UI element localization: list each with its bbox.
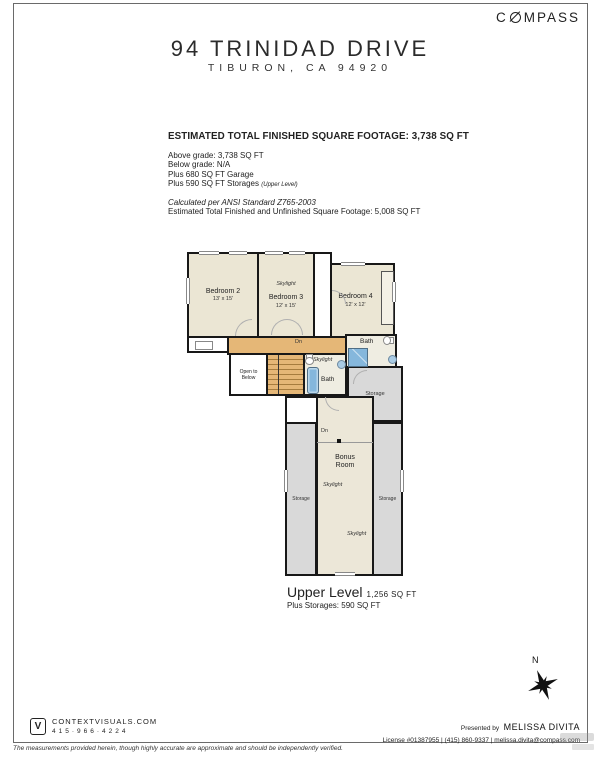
summary-storages-text: Plus 590 SQ FT Storages xyxy=(168,179,259,188)
window xyxy=(284,470,288,492)
closet-fixture xyxy=(195,341,213,350)
storage-label: Storage xyxy=(292,496,310,502)
stair-direction-line xyxy=(278,355,279,394)
window xyxy=(229,251,247,255)
window xyxy=(400,470,404,492)
square-footage-summary: ESTIMATED TOTAL FINISHED SQUARE FOOTAGE:… xyxy=(168,131,469,217)
window xyxy=(289,251,305,255)
page-title: 94 TRINIDAD DRIVE xyxy=(0,36,600,62)
open-to-below-label: Open to Below xyxy=(235,369,263,381)
skylight-label: Skylight xyxy=(276,281,295,287)
agent-name: MELISSA DIVITA xyxy=(504,722,580,732)
room-dimensions: 12' x 15' xyxy=(276,303,296,309)
bonus-room-label: Bonus Room xyxy=(316,454,374,472)
corridor xyxy=(285,396,318,424)
contextvisuals-logo-icon: V xyxy=(30,718,46,735)
level-storages: Plus Storages: 590 SQ FT xyxy=(287,601,417,610)
level-area: 1,256 SQ FT xyxy=(367,590,417,599)
open-to-below: Open to Below xyxy=(229,353,268,396)
window xyxy=(392,282,396,302)
sink xyxy=(388,355,397,364)
summary-garage: Plus 680 SQ FT Garage xyxy=(168,170,469,179)
skylight-label: Skylight xyxy=(313,357,332,363)
floor-plan-page: C MPASS 94 TRINIDAD DRIVE TIBURON, CA 94… xyxy=(0,0,600,764)
presented-by-label: Presented by xyxy=(461,725,499,732)
summary-storages-note: (Upper Level) xyxy=(261,182,297,188)
summary-storages: Plus 590 SQ FT Storages (Upper Level) xyxy=(168,179,469,190)
room-dimensions: 13' x 15' xyxy=(213,296,233,302)
compass-logo-o-icon xyxy=(510,12,521,23)
window xyxy=(265,251,283,255)
compass-rose: N xyxy=(520,655,568,707)
room-label: Bonus Room xyxy=(329,454,361,471)
agent-credit: Presented by MELISSA DIVITA License #013… xyxy=(382,717,580,744)
staircase xyxy=(266,353,305,396)
contextvisuals-site: CONTEXTVISUALS.COM xyxy=(52,717,157,726)
compass-rose-icon xyxy=(520,661,568,707)
window xyxy=(186,278,190,304)
toilet xyxy=(305,354,314,365)
contextvisuals-logo-letter: V xyxy=(35,721,42,732)
measurements-disclaimer: The measurements provided herein, though… xyxy=(13,745,343,752)
down-stairs-label: Dn xyxy=(321,428,328,434)
contextvisuals-phone: 415·966·4224 xyxy=(52,728,157,735)
floor-plan: Bedroom 2 13' x 15' Skylight Bedroom 3 1… xyxy=(185,250,411,580)
window xyxy=(335,572,355,576)
door-marker xyxy=(337,439,341,443)
compass-logo-text-post: MPASS xyxy=(524,10,580,25)
sink xyxy=(337,360,346,369)
watermark xyxy=(556,733,594,755)
summary-above-grade: Above grade: 3,738 SQ FT xyxy=(168,151,469,160)
window xyxy=(199,251,219,255)
bath-label: Bath xyxy=(360,338,373,345)
skylight-label: Skylight xyxy=(323,482,342,488)
summary-below-grade: Below grade: N/A xyxy=(168,160,469,169)
agent-contact: License #01387955 | (415) 860-9337 | mel… xyxy=(382,737,580,744)
down-stairs-label: Dn xyxy=(295,339,302,345)
summary-ansi-note: Calculated per ANSI Standard Z765-2003 xyxy=(168,198,469,207)
bonus-room-divider xyxy=(317,442,373,443)
skylight-label: Skylight xyxy=(347,531,366,537)
window xyxy=(341,262,365,266)
summary-heading: ESTIMATED TOTAL FINISHED SQUARE FOOTAGE:… xyxy=(168,131,469,142)
room-dimensions: 12' x 12' xyxy=(345,302,365,308)
bathtub xyxy=(307,367,319,394)
compass-logo: C MPASS xyxy=(496,10,580,25)
toilet xyxy=(383,336,394,345)
room-storage-right: Storage xyxy=(372,422,403,576)
room-label: Bedroom 2 xyxy=(206,288,240,296)
shower xyxy=(348,348,368,367)
summary-total: Estimated Total Finished and Unfinished … xyxy=(168,207,469,216)
storage-label: Storage xyxy=(379,496,397,502)
level-caption: Upper Level 1,256 SQ FT Plus Storages: 5… xyxy=(287,584,417,610)
contextvisuals-credit: V CONTEXTVISUALS.COM 415·966·4224 xyxy=(30,717,157,735)
compass-logo-text-pre: C xyxy=(496,10,508,25)
bath-label: Bath xyxy=(321,376,334,383)
page-subtitle: TIBURON, CA 94920 xyxy=(0,62,600,74)
level-name: Upper Level xyxy=(287,584,363,600)
room-label: Bedroom 3 xyxy=(269,294,303,302)
room-storage-left: Storage xyxy=(285,422,317,576)
